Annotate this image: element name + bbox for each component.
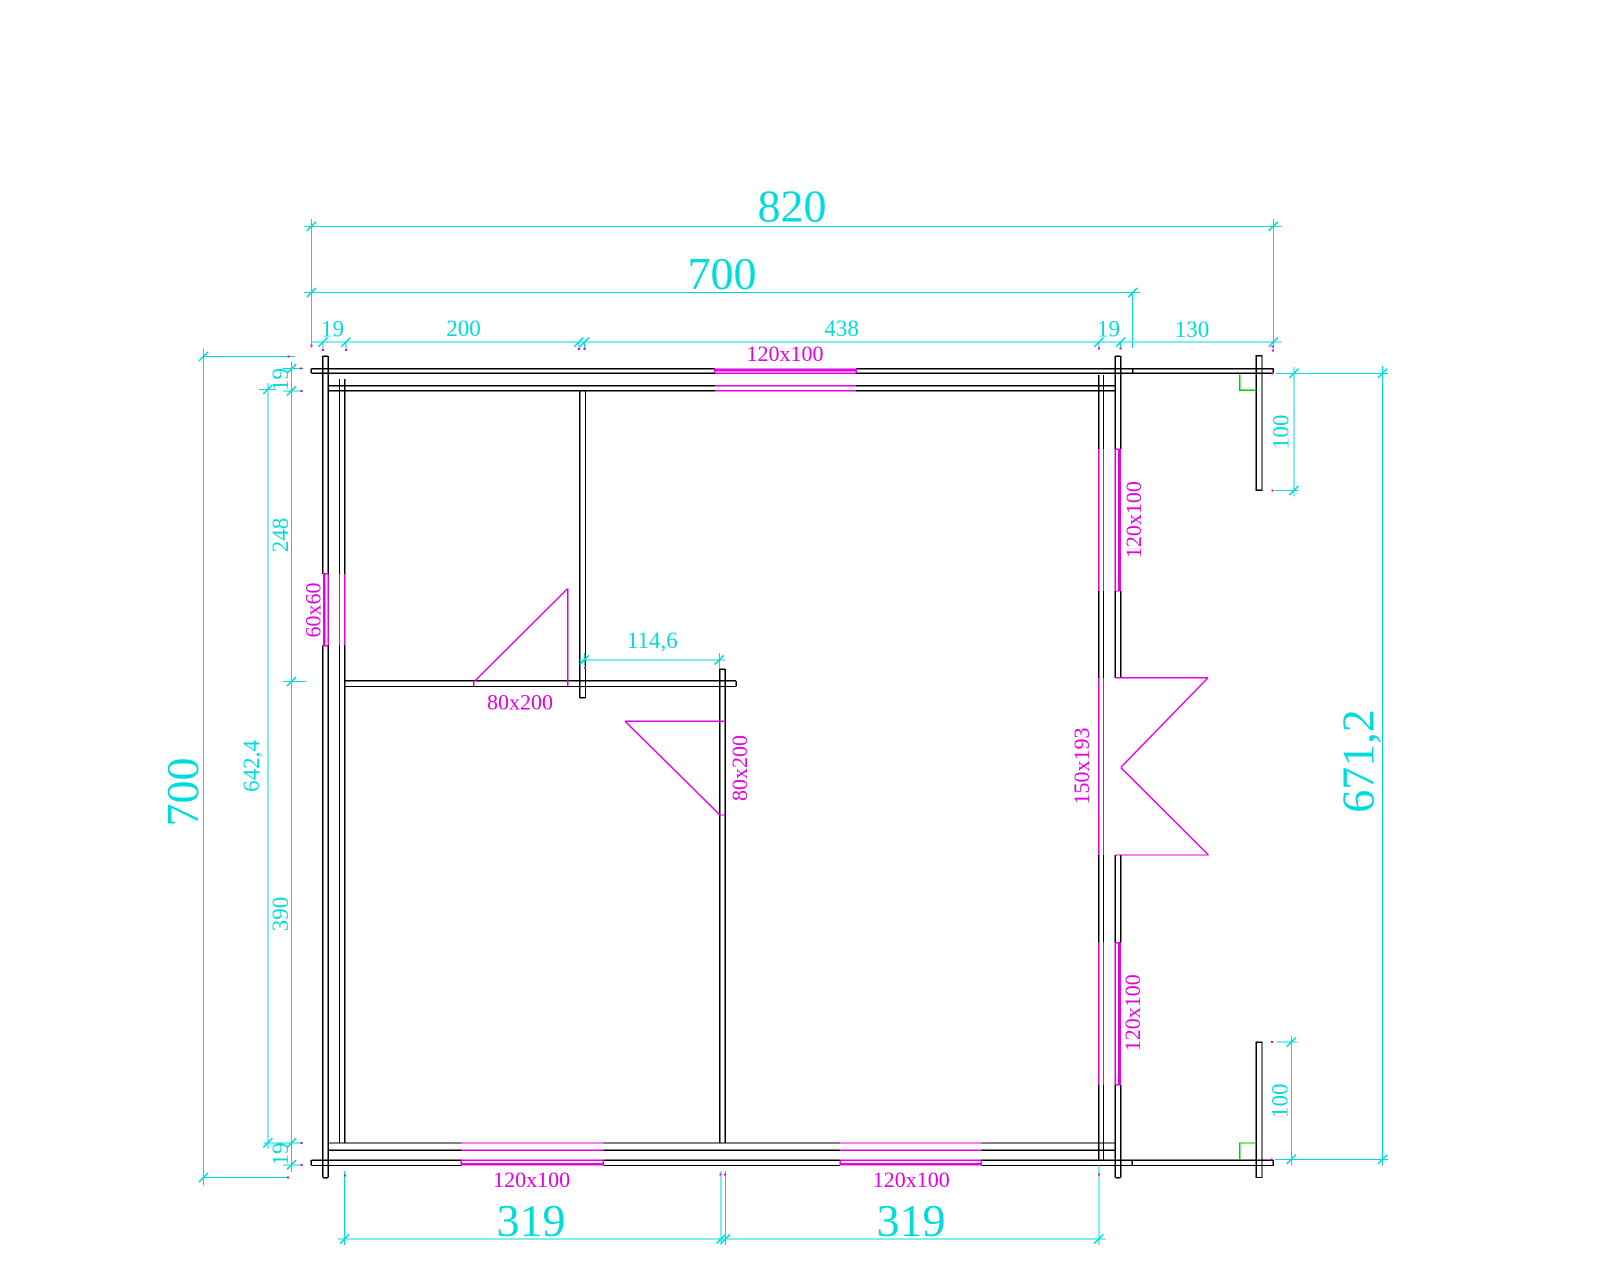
svg-text:120x100: 120x100 xyxy=(1120,974,1145,1051)
svg-text:700: 700 xyxy=(688,248,757,299)
svg-text:438: 438 xyxy=(824,316,859,341)
svg-text:80x200: 80x200 xyxy=(727,735,752,801)
svg-text:642,4: 642,4 xyxy=(239,740,264,792)
svg-text:100: 100 xyxy=(1269,415,1294,450)
svg-text:700: 700 xyxy=(157,758,208,827)
svg-text:150x193: 150x193 xyxy=(1069,728,1094,805)
svg-text:19: 19 xyxy=(268,1143,293,1166)
svg-text:319: 319 xyxy=(497,1195,566,1246)
svg-text:120x100: 120x100 xyxy=(873,1167,950,1192)
svg-text:19: 19 xyxy=(1097,317,1120,342)
svg-text:200: 200 xyxy=(446,316,481,341)
svg-text:671,2: 671,2 xyxy=(1333,709,1384,813)
svg-text:120x100: 120x100 xyxy=(493,1167,570,1192)
svg-text:390: 390 xyxy=(268,897,293,932)
svg-text:120x100: 120x100 xyxy=(747,341,824,366)
svg-text:114,6: 114,6 xyxy=(627,628,678,653)
svg-text:60x60: 60x60 xyxy=(300,583,325,638)
svg-text:19: 19 xyxy=(321,317,344,342)
svg-text:820: 820 xyxy=(758,181,827,232)
svg-text:80x200: 80x200 xyxy=(487,690,553,715)
svg-text:130: 130 xyxy=(1175,317,1210,342)
svg-text:100: 100 xyxy=(1268,1083,1293,1118)
svg-text:19: 19 xyxy=(268,368,293,391)
svg-text:120x100: 120x100 xyxy=(1121,481,1146,558)
svg-text:248: 248 xyxy=(268,518,293,553)
svg-text:319: 319 xyxy=(877,1195,946,1246)
